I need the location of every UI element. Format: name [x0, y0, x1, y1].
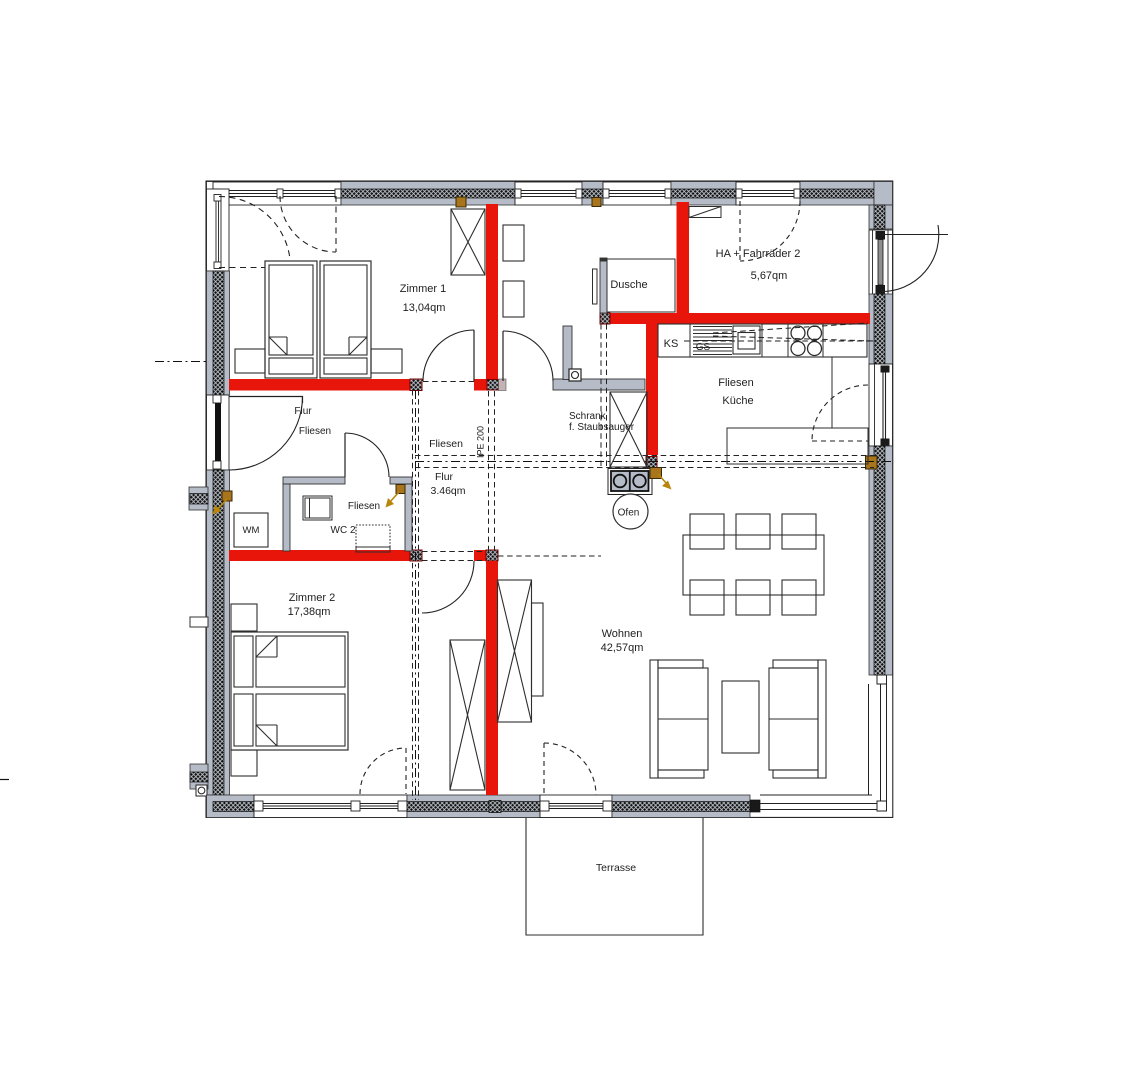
svg-text:Schrank: Schrank — [569, 411, 607, 422]
svg-text:Wohnen: Wohnen — [602, 628, 643, 640]
svg-text:Flur: Flur — [435, 471, 454, 483]
svg-text:Fliesen: Fliesen — [429, 438, 463, 450]
svg-text:5,67qm: 5,67qm — [751, 270, 788, 282]
svg-text:Dusche: Dusche — [610, 279, 647, 291]
svg-text:Küche: Küche — [722, 395, 753, 407]
svg-text:WM: WM — [243, 525, 260, 536]
svg-text:Terrasse: Terrasse — [596, 862, 636, 874]
svg-text:GS: GS — [696, 342, 711, 353]
svg-text:42,57qm: 42,57qm — [601, 642, 644, 654]
svg-text:17,38qm: 17,38qm — [288, 606, 331, 618]
svg-text:Fliesen: Fliesen — [299, 426, 331, 437]
svg-text:HA + Fahrräder 2: HA + Fahrräder 2 — [716, 248, 801, 260]
svg-text:Flur: Flur — [294, 406, 312, 417]
svg-text:WC 2: WC 2 — [331, 525, 356, 536]
svg-text:Zimmer 2: Zimmer 2 — [289, 592, 335, 604]
svg-text:13,04qm: 13,04qm — [403, 302, 446, 314]
svg-text:Fliesen: Fliesen — [348, 501, 380, 512]
svg-text:Fliesen: Fliesen — [718, 377, 753, 389]
svg-text:3.46qm: 3.46qm — [430, 485, 465, 497]
svg-text:Zimmer 1: Zimmer 1 — [400, 283, 446, 295]
svg-text:Ofen: Ofen — [618, 508, 640, 519]
svg-text:IPE 200: IPE 200 — [476, 426, 486, 458]
svg-text:f. Staubsauger: f. Staubsauger — [569, 422, 635, 433]
svg-text:KS: KS — [664, 338, 679, 350]
